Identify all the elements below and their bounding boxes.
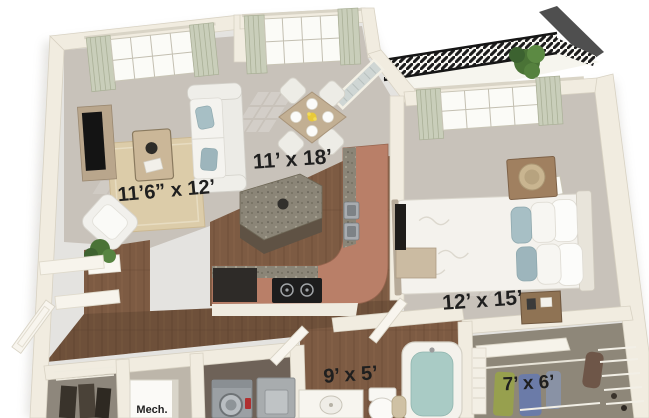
- coat-2: [78, 384, 96, 418]
- media-console: [396, 248, 436, 278]
- coat-1: [59, 385, 77, 418]
- bathroom-dimensions: 9’ x 5’: [323, 362, 379, 388]
- bath-basket: [392, 396, 406, 418]
- pillow-white-3: [531, 202, 556, 243]
- washer: [212, 380, 252, 418]
- island-bowl: [278, 199, 289, 210]
- wall-stub-mech-laundry: [190, 353, 205, 418]
- bed: [391, 191, 594, 298]
- dresser: [507, 156, 558, 199]
- tub-faucet: [429, 347, 434, 352]
- vanity: [299, 390, 363, 418]
- sofa-pillow-blue-2: [200, 148, 217, 171]
- floorplan-canvas: Mech. 11’6” x 12’ 11’ x 18’ 12’ x 15’ 9’…: [0, 0, 649, 418]
- cooktop: [272, 278, 322, 303]
- coffee-table: [132, 129, 173, 182]
- bathtub: [402, 342, 462, 418]
- closet-dimensions: 7’ x 6’: [502, 372, 555, 396]
- pillow-white-4: [536, 244, 561, 285]
- floorplan-3d-render: Mech. 11’6” x 12’ 11’ x 18’ 12’ x 15’ 9’…: [0, 0, 649, 418]
- coat-3: [95, 387, 112, 418]
- wall-stub-closet-mech: [116, 359, 131, 418]
- tv-console: [77, 105, 116, 181]
- tv-screen: [395, 204, 406, 250]
- dryer: [257, 378, 295, 418]
- mech-label: Mech.: [136, 404, 167, 416]
- tv-screen: [82, 112, 106, 171]
- pillow-blue-2: [516, 247, 537, 282]
- mechanical-room: Mech.: [130, 380, 178, 418]
- pillow-blue-1: [511, 207, 532, 244]
- washer-knob-red: [245, 398, 251, 409]
- dishwasher: [213, 268, 257, 302]
- counter-toe-kick: [212, 303, 358, 316]
- nightstand: [520, 291, 562, 324]
